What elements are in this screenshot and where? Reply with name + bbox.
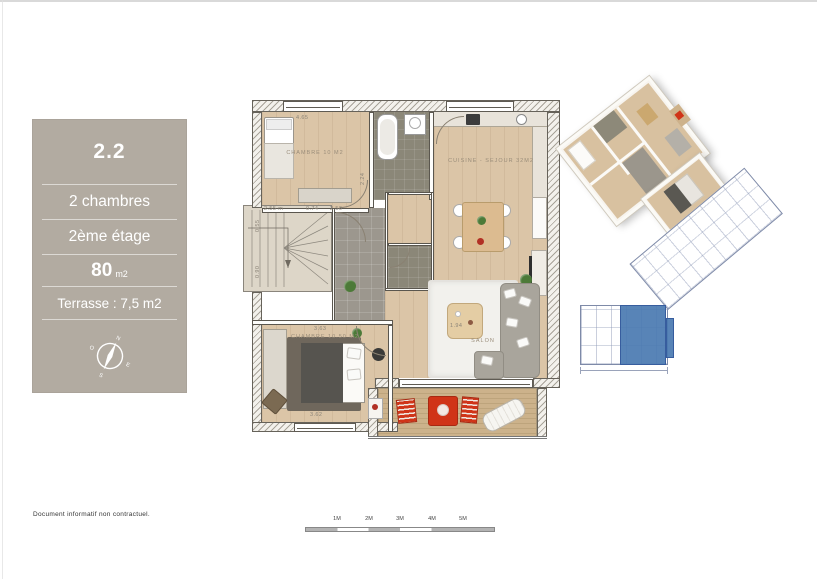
siteplan-dim-tick bbox=[580, 367, 581, 374]
scale-label-1m: 1M bbox=[327, 516, 347, 522]
partition bbox=[431, 192, 434, 291]
bedrooms-line: 2 chambres bbox=[33, 185, 186, 219]
wall-south-salon-left bbox=[375, 378, 399, 388]
brochure-page: 2.2 2 chambres 2ème étage 80 m2 Terrasse… bbox=[0, 0, 817, 579]
room-label-chambre1: CHAMBRE 10 M2 bbox=[270, 150, 360, 156]
window bbox=[283, 101, 343, 112]
room-label-salon: SALON bbox=[466, 338, 500, 344]
scan-artifact-top bbox=[0, 0, 817, 2]
sliding-door bbox=[399, 379, 533, 388]
dimension: 3.63 bbox=[314, 326, 326, 332]
cooktop bbox=[466, 114, 480, 125]
partition bbox=[385, 192, 388, 291]
table-decor bbox=[477, 238, 484, 245]
plant-icon bbox=[344, 280, 356, 292]
partition bbox=[388, 325, 393, 432]
unit-number: 2.2 bbox=[33, 120, 186, 184]
partition bbox=[388, 243, 432, 246]
compass-west: O bbox=[88, 345, 95, 353]
dimension: 2.55 m bbox=[264, 206, 283, 212]
terrace-line: Terrasse : 7,5 m2 bbox=[33, 287, 186, 319]
wall-west-lower bbox=[252, 292, 262, 432]
scale-label-4m: 4M bbox=[422, 516, 442, 522]
compass-south: S bbox=[97, 372, 103, 379]
bathtub-basin bbox=[380, 119, 395, 155]
decor-red bbox=[372, 404, 378, 410]
room-label-chambre2: CHAMBRE 10.50 M2 bbox=[280, 334, 370, 340]
plate bbox=[437, 404, 449, 416]
dimension: 1.94 bbox=[450, 323, 462, 329]
window bbox=[446, 101, 514, 112]
terrace-wall-right bbox=[537, 388, 547, 438]
dimension: 0.74 bbox=[306, 206, 318, 212]
table-decor bbox=[455, 311, 461, 317]
dimension: 3.62 bbox=[310, 412, 322, 418]
scale-label-3m: 3M bbox=[390, 516, 410, 522]
terrace-chair bbox=[396, 398, 417, 424]
pillow bbox=[266, 119, 292, 130]
partition bbox=[388, 192, 434, 195]
blanket bbox=[301, 343, 343, 403]
floor-line: 2ème étage bbox=[33, 220, 186, 254]
wall-west-upper bbox=[252, 112, 262, 208]
dimension: 2.50 bbox=[330, 206, 342, 212]
siteplan-unit-highlight-ext bbox=[666, 318, 674, 358]
coffee-table bbox=[447, 303, 483, 339]
dimension: 4.65 bbox=[296, 115, 308, 121]
stairwell bbox=[243, 205, 332, 292]
siteplan-dim-tick bbox=[667, 367, 668, 374]
terrace-railing bbox=[368, 436, 547, 439]
partition bbox=[369, 112, 374, 208]
area-unit: m2 bbox=[115, 269, 128, 279]
room-label-cuisine: CUISINE - SEJOUR 32M2 bbox=[444, 158, 538, 164]
kitchen-sink bbox=[516, 114, 527, 125]
area-line: 80 m2 bbox=[33, 255, 186, 286]
siteplan-dim-line bbox=[580, 370, 668, 371]
compass-east: E bbox=[124, 362, 130, 369]
washer-drum-icon bbox=[409, 117, 421, 129]
partition bbox=[252, 320, 393, 325]
compass-area: N E S O bbox=[33, 320, 186, 392]
pillow bbox=[346, 368, 361, 380]
compass-north: N bbox=[114, 335, 120, 342]
area-value: 80 bbox=[91, 260, 112, 282]
table-decor bbox=[468, 320, 473, 325]
blanket bbox=[264, 143, 294, 179]
siteplan-unit-highlight bbox=[620, 305, 666, 365]
cushion bbox=[505, 317, 518, 328]
dimension: 0.90 bbox=[255, 266, 261, 278]
wall-east bbox=[547, 112, 560, 388]
scan-artifact-left bbox=[2, 0, 3, 579]
window bbox=[294, 423, 356, 432]
pillow bbox=[346, 347, 361, 360]
plant-icon bbox=[477, 216, 486, 225]
partition bbox=[332, 208, 335, 325]
dimension: 0.55 bbox=[255, 220, 261, 232]
partition bbox=[385, 288, 434, 291]
scale-label-5m: 5M bbox=[453, 516, 473, 522]
scale-label-2m: 2M bbox=[359, 516, 379, 522]
bathroom2-floor bbox=[388, 195, 432, 243]
wall-south-salon-right bbox=[533, 378, 560, 388]
disclaimer-text: Document informatif non contractuel. bbox=[33, 511, 150, 518]
unit-info-panel: 2.2 2 chambres 2ème étage 80 m2 Terrasse… bbox=[33, 120, 186, 392]
scale-bar: 1M 2M 3M 4M 5M bbox=[305, 516, 495, 534]
dimension: 2.24 bbox=[360, 173, 366, 185]
dining-table bbox=[462, 202, 504, 252]
compass-icon: N E S O bbox=[86, 332, 134, 380]
scale-bar-segments bbox=[305, 527, 495, 532]
terrace-chair bbox=[460, 396, 479, 423]
fridge-unit bbox=[532, 197, 547, 239]
